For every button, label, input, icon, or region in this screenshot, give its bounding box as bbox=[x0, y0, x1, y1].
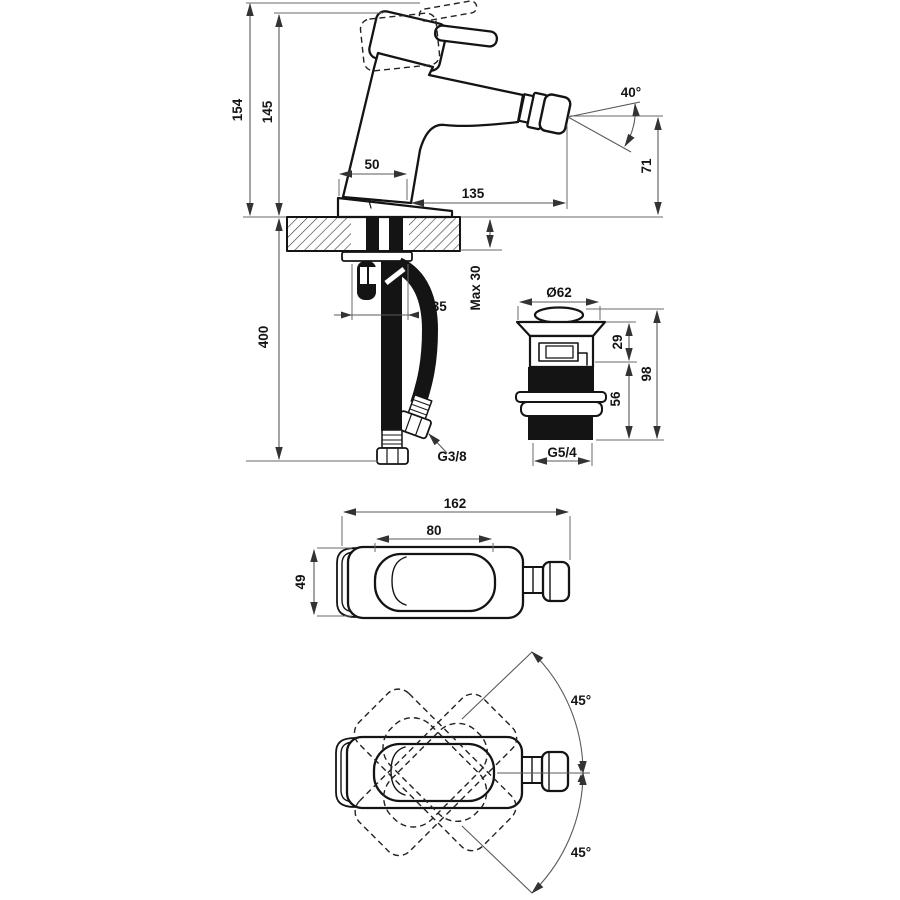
under-deck-hardware bbox=[342, 252, 438, 464]
supply-hose-right bbox=[398, 265, 430, 404]
drain-lower-thread bbox=[528, 416, 593, 440]
swivel-handle bbox=[374, 744, 494, 801]
dim-label-hose-length: 400 bbox=[256, 326, 271, 349]
dim-label-body-height: 145 bbox=[260, 100, 275, 123]
plan-aerator bbox=[543, 562, 569, 601]
top-view: 162 80 49 bbox=[293, 496, 570, 618]
dim-label-aerator-angle: 40° bbox=[621, 85, 641, 100]
drain-nut bbox=[521, 402, 602, 416]
faucet-body bbox=[343, 53, 523, 203]
swivel-view: 45° 45° bbox=[336, 652, 591, 893]
dim-label-spout-height: 71 bbox=[639, 158, 654, 174]
top-view-outline bbox=[337, 547, 569, 618]
dim-label-overall-length: 162 bbox=[444, 496, 467, 511]
drain-upper-thread bbox=[528, 367, 594, 392]
drain-washer bbox=[516, 392, 606, 402]
dim-label-total-height: 98 bbox=[639, 366, 654, 382]
dim-label-swivel-up: 45° bbox=[571, 693, 591, 708]
dim-label-spout-reach: 135 bbox=[462, 186, 485, 201]
mounting-deck-section bbox=[287, 217, 502, 253]
hose-left-connector bbox=[377, 430, 408, 464]
dim-label-handle-length: 80 bbox=[426, 523, 441, 538]
dim-label-cap-height: 29 bbox=[610, 334, 625, 349]
dim-label-waste-thread: G5/4 bbox=[547, 445, 577, 460]
swivel-aerator bbox=[542, 752, 568, 791]
aerator-spout-tip bbox=[519, 93, 572, 135]
drain-assembly-view: Ø62 29 56 98 G5/4 bbox=[516, 285, 664, 466]
dim-label-body-width: 50 bbox=[364, 157, 379, 172]
supply-hose-left bbox=[381, 261, 402, 431]
dim-label-overall-height: 154 bbox=[230, 98, 245, 121]
dim-label-swivel-down: 45° bbox=[571, 845, 591, 860]
dim-label-deck-thickness: Max 30 bbox=[468, 265, 483, 310]
faucet-technical-drawing: 154 145 400 50 135 40° 71 Max 30 Ø bbox=[0, 0, 900, 900]
drain-cap bbox=[535, 308, 583, 323]
drain-flange bbox=[517, 322, 605, 336]
swivel-outline bbox=[336, 683, 568, 862]
dim-label-plan-width: 49 bbox=[293, 574, 308, 589]
drain-outline bbox=[516, 308, 606, 441]
dim-label-hole-diameter: Ø35 bbox=[421, 299, 447, 314]
dim-label-hose-thread: G3/8 bbox=[437, 449, 467, 464]
plan-handle bbox=[375, 554, 495, 611]
technical-drawing-page: 154 145 400 50 135 40° 71 Max 30 Ø bbox=[0, 0, 900, 900]
faucet-side-outline bbox=[338, 0, 572, 217]
dim-label-thread-length: 56 bbox=[608, 391, 623, 407]
dim-label-cap-diameter: Ø62 bbox=[546, 285, 572, 300]
